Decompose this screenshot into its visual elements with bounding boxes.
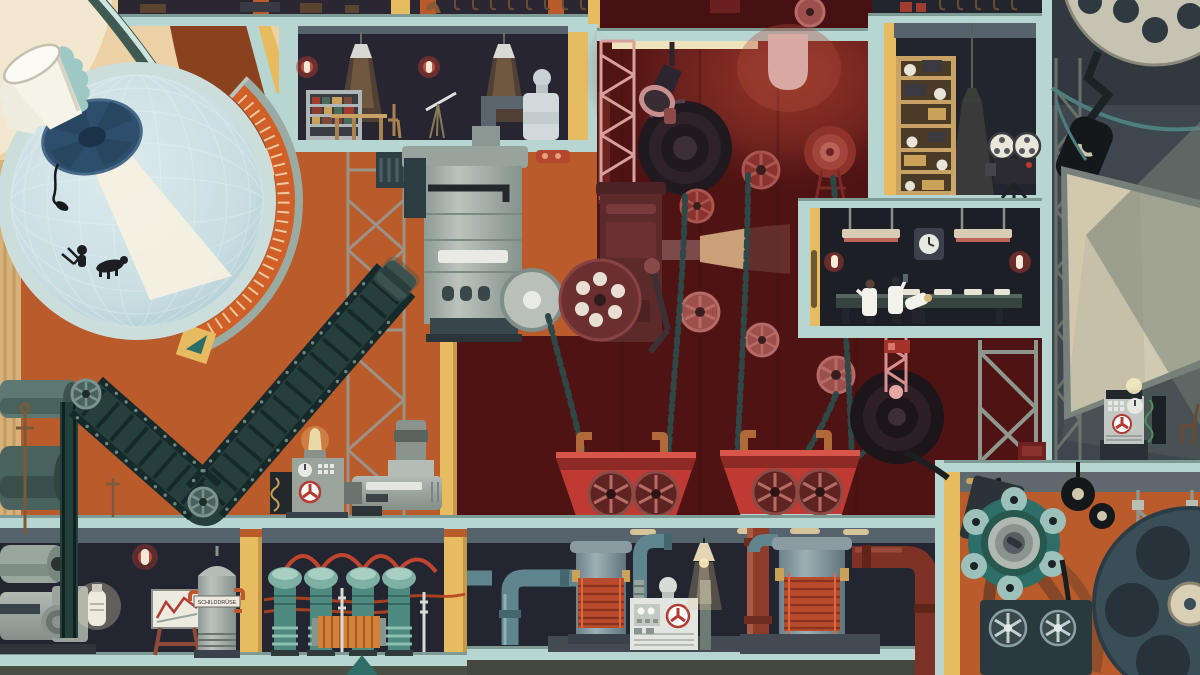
svg-text:SCHILDDRÜSE: SCHILDDRÜSE xyxy=(198,599,237,606)
